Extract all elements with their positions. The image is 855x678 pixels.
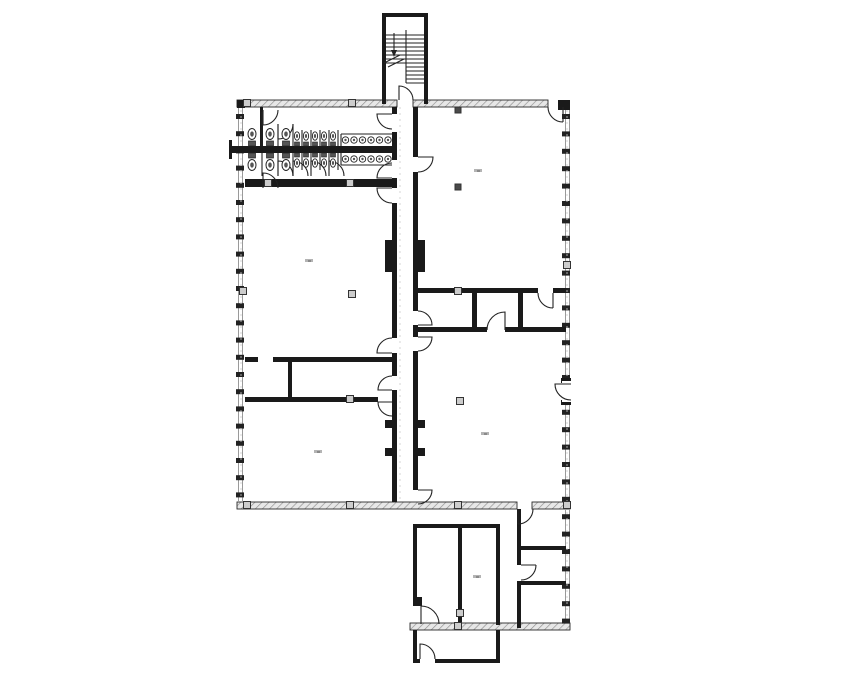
urinal-icon [313,153,318,157]
door-swing [378,402,392,416]
door-swing [521,565,536,580]
column-marker [240,288,247,295]
column-marker [564,502,571,509]
toilet-icon [249,141,256,146]
column-marker [347,502,354,509]
floorplan-canvas [0,0,855,678]
urinal-icon [322,153,327,157]
urinal-icon [295,142,300,146]
toilet-icon [283,141,290,146]
door-swing [421,606,439,624]
door-swing [418,337,432,351]
solid-walls-layer [229,13,571,663]
toilet-icon [283,153,290,158]
column-marker [455,502,462,509]
column-marker [564,262,571,269]
door-swing [377,338,392,353]
column-marker [457,398,464,405]
column-marker [347,396,354,403]
floor-plan-svg [0,0,855,678]
column-marker [244,100,251,107]
column-marker [455,288,462,295]
column-marker [244,502,251,509]
column-marker [347,180,354,187]
toilet-icon [267,141,274,146]
door-swing [538,293,553,308]
column-marker [349,100,356,107]
door-swing [487,312,505,330]
door-swing [377,114,392,129]
urinal-icon [304,153,309,157]
toilet-icon [249,153,256,158]
urinal-icon [313,142,318,146]
door-swing [263,110,278,125]
column-marker [455,623,462,630]
door-swing [418,157,433,172]
column-marker [455,107,461,113]
urinal-icon [304,142,309,146]
door-swing [420,644,435,659]
door-swing [378,376,392,390]
toilet-icon [267,153,274,158]
door-swing [418,311,432,325]
urinal-icon [322,142,327,146]
door-swing [377,188,392,203]
column-marker [455,184,461,190]
column-marker [265,180,272,187]
stair-direction-arrow-icon [391,50,397,57]
column-marker [457,610,464,617]
door-swing [399,86,413,100]
urinal-icon [331,142,336,146]
urinal-icon [331,153,336,157]
column-marker [349,291,356,298]
urinal-icon [295,153,300,157]
